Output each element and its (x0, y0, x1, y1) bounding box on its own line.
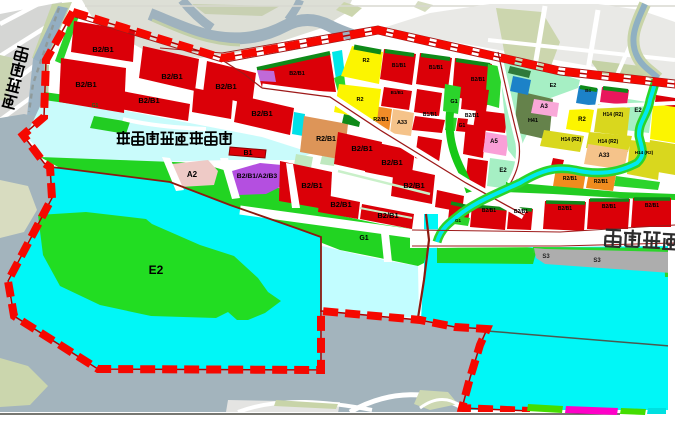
svg-text:B2/B1: B2/B1 (215, 82, 236, 91)
svg-text:G1: G1 (359, 235, 368, 242)
svg-text:B2/B1: B2/B1 (251, 109, 272, 118)
svg-text:B2/B1: B2/B1 (301, 181, 322, 190)
svg-text:A33: A33 (598, 153, 610, 159)
svg-text:B2/B1/A2/B3: B2/B1/A2/B3 (237, 173, 278, 180)
svg-text:H41: H41 (528, 118, 538, 124)
svg-text:A5: A5 (490, 139, 498, 145)
svg-text:E2: E2 (634, 108, 642, 114)
svg-text:R2: R2 (362, 58, 369, 64)
svg-text:H14 (R2): H14 (R2) (603, 112, 624, 118)
svg-text:B2/B1: B2/B1 (558, 206, 572, 212)
svg-text:A33: A33 (397, 120, 407, 126)
svg-text:G1: G1 (459, 123, 466, 129)
svg-text:S3: S3 (593, 258, 601, 264)
svg-text:H14 (R2): H14 (R2) (561, 137, 582, 143)
svg-text:R2: R2 (356, 97, 363, 103)
svg-text:B2/B1: B2/B1 (645, 203, 659, 209)
svg-text:B2/B1: B2/B1 (471, 77, 485, 83)
svg-text:B1: B1 (244, 150, 253, 157)
svg-text:S3: S3 (542, 254, 550, 260)
svg-text:B4: B4 (585, 88, 591, 93)
svg-text:B2/B1: B2/B1 (465, 113, 479, 119)
svg-text:R2/B1: R2/B1 (373, 117, 389, 123)
svg-text:B2/B1: B2/B1 (289, 71, 305, 77)
svg-text:B1/B1: B1/B1 (391, 90, 404, 95)
svg-text:A3: A3 (540, 104, 548, 110)
svg-text:E2: E2 (499, 168, 507, 174)
svg-text:B2/B1: B2/B1 (351, 144, 372, 153)
svg-text:B1/B1: B1/B1 (423, 112, 437, 118)
svg-text:B2/B1: B2/B1 (514, 209, 528, 215)
svg-text:B2/B1: B2/B1 (330, 200, 351, 209)
svg-text:B2/B1: B2/B1 (381, 158, 402, 167)
svg-text:B2/B1: B2/B1 (403, 181, 424, 190)
svg-text:B2/B1: B2/B1 (92, 45, 113, 54)
svg-text:E2: E2 (550, 83, 557, 89)
svg-text:B2/B1: B2/B1 (377, 211, 398, 220)
svg-text:E2: E2 (149, 263, 164, 277)
svg-text:B1/B1: B1/B1 (429, 65, 443, 71)
svg-text:B2/B1: B2/B1 (75, 80, 96, 89)
svg-text:R2: R2 (578, 117, 586, 123)
svg-text:B2/B1: B2/B1 (138, 96, 159, 105)
svg-text:A2: A2 (187, 170, 198, 179)
svg-text:B2/B1: B2/B1 (161, 72, 182, 81)
svg-text:B1/B1: B1/B1 (392, 63, 406, 69)
svg-text:H14 (R2): H14 (R2) (635, 150, 654, 155)
svg-text:G1: G1 (450, 99, 457, 105)
svg-text:R2/B1: R2/B1 (316, 136, 336, 143)
svg-text:B2/B1: B2/B1 (482, 208, 496, 214)
svg-text:R2/B1: R2/B1 (563, 176, 577, 182)
svg-text:B2/B1: B2/B1 (602, 204, 616, 210)
svg-text:R2/B1: R2/B1 (594, 179, 608, 185)
svg-text:H14 (R2): H14 (R2) (598, 139, 619, 145)
svg-text:G1: G1 (92, 103, 99, 109)
svg-text:G1: G1 (455, 218, 462, 223)
